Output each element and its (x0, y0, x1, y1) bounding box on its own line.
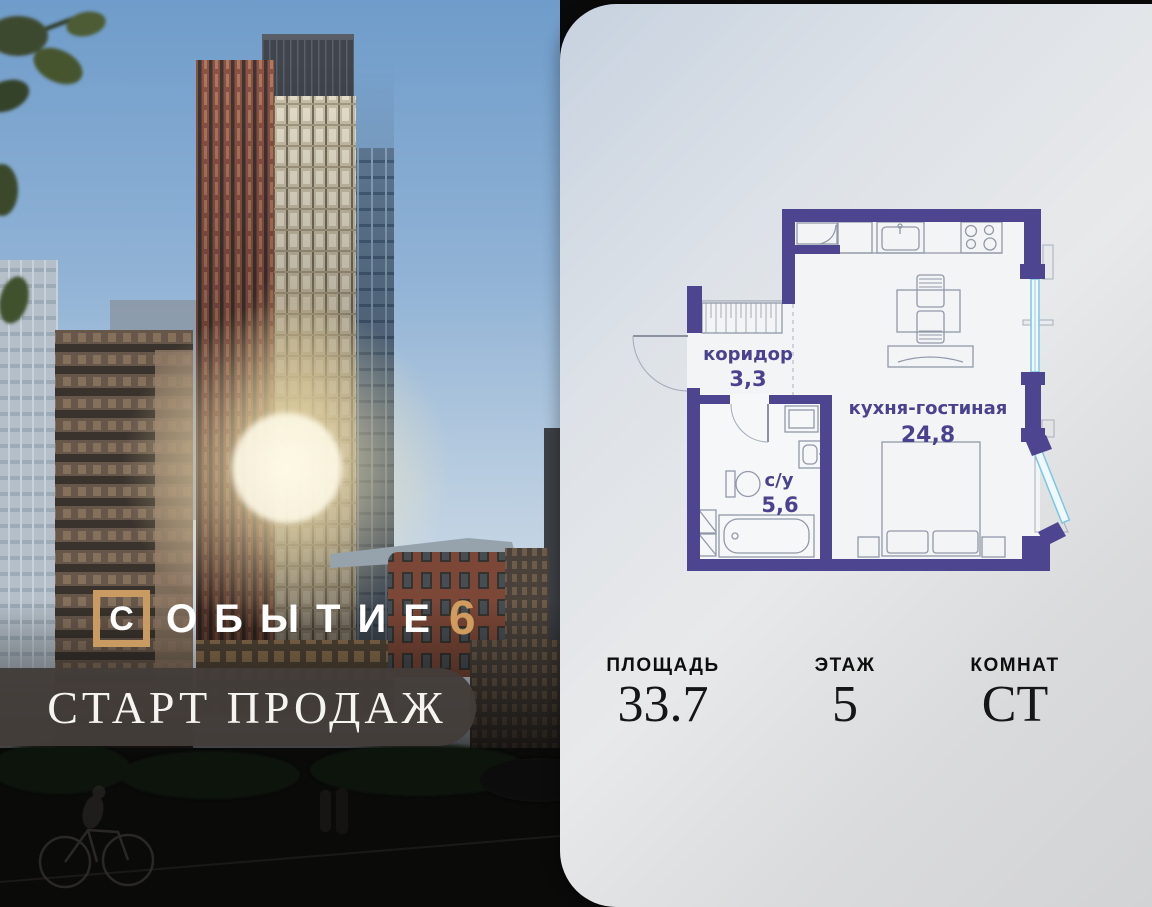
stat-rooms-label: КОМНАТ (970, 655, 1059, 677)
logo-square-frame: С (93, 590, 150, 647)
room-name-corridor: коридор (703, 344, 793, 365)
stats-row: ПЛОЩАДЬ 33.7 ЭТАЖ 5 КОМНАТ СТ (560, 655, 1152, 765)
stat-floor-label: ЭТАЖ (815, 655, 876, 677)
sales-start-banner: СТАРТ ПРОДАЖ (0, 668, 476, 746)
stat-area-value: 33.7 (606, 679, 719, 731)
stat-rooms: КОМНАТ СТ (970, 655, 1059, 731)
room-area-kitchen-living: 24,8 (901, 423, 955, 448)
info-panel: коридор 3,3 с/у 5,6 кухня-гостиная 24,8 … (560, 4, 1152, 907)
stat-area-label: ПЛОЩАДЬ (606, 655, 719, 677)
stat-floor: ЭТАЖ 5 (815, 655, 876, 731)
room-area-corridor: 3,3 (729, 367, 766, 391)
room-name-bathroom: с/у (765, 470, 794, 491)
room-name-kitchen-living: кухня-гостиная (849, 398, 1008, 419)
logo: С ОБЫТИЕ 6 (93, 590, 476, 647)
entry-door-arc (633, 336, 688, 391)
floor-plan: коридор 3,3 с/у 5,6 кухня-гостиная 24,8 (615, 199, 1090, 584)
sales-start-label: СТАРТ ПРОДАЖ (29, 681, 447, 734)
stat-rooms-value: СТ (970, 679, 1059, 731)
stat-area: ПЛОЩАДЬ 33.7 (606, 655, 719, 731)
listing-card: С ОБЫТИЕ 6 СТАРТ ПРОДАЖ (0, 0, 1152, 907)
logo-letter-s: С (109, 602, 134, 636)
building-photo (0, 0, 560, 907)
logo-wordmark: ОБЫТИЕ (166, 599, 447, 639)
stat-floor-value: 5 (815, 679, 876, 731)
room-area-bathroom: 5,6 (761, 493, 798, 517)
logo-number-6: 6 (449, 595, 476, 643)
